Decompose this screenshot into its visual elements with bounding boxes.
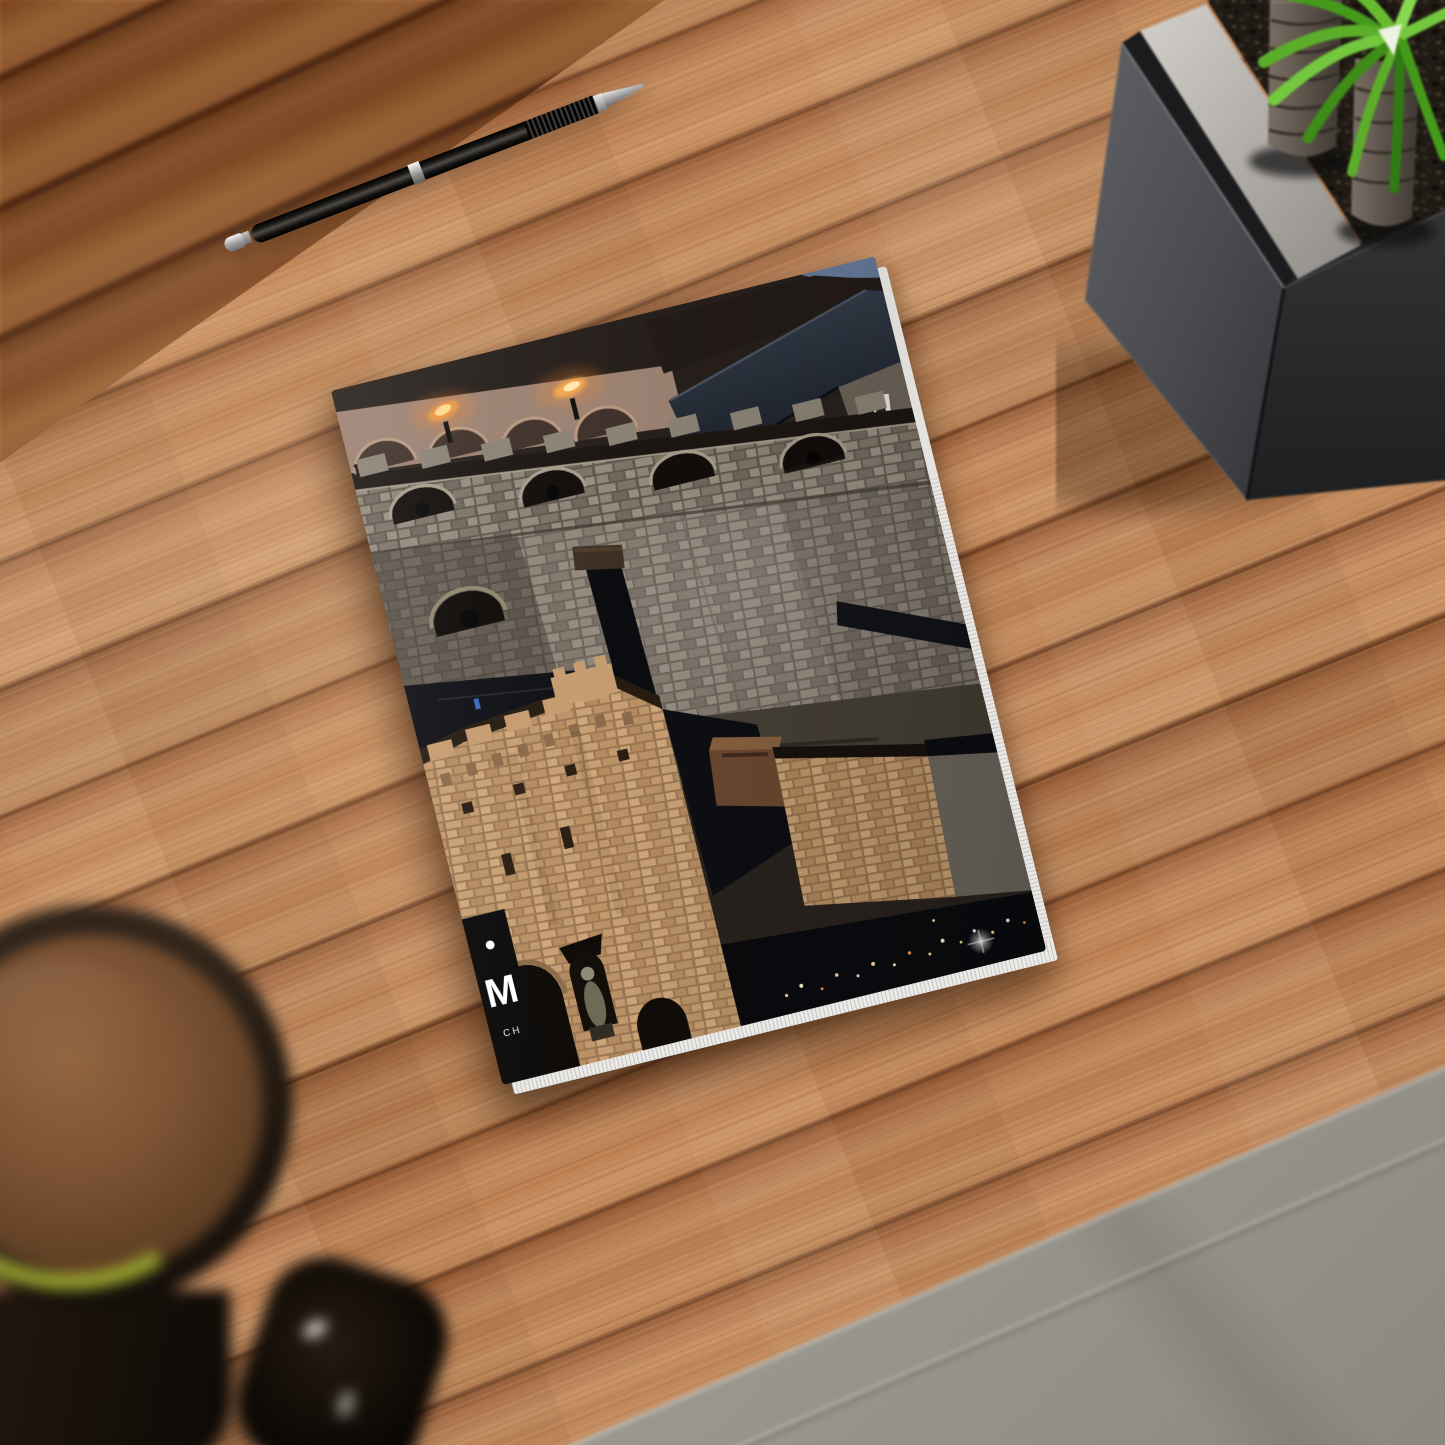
mug-body (0, 1290, 230, 1445)
mug-rim-highlight (0, 892, 288, 1328)
potted-plant (1056, 0, 1445, 560)
coffee-mug (0, 870, 510, 1445)
photo-scene: M CH (0, 0, 1445, 1445)
